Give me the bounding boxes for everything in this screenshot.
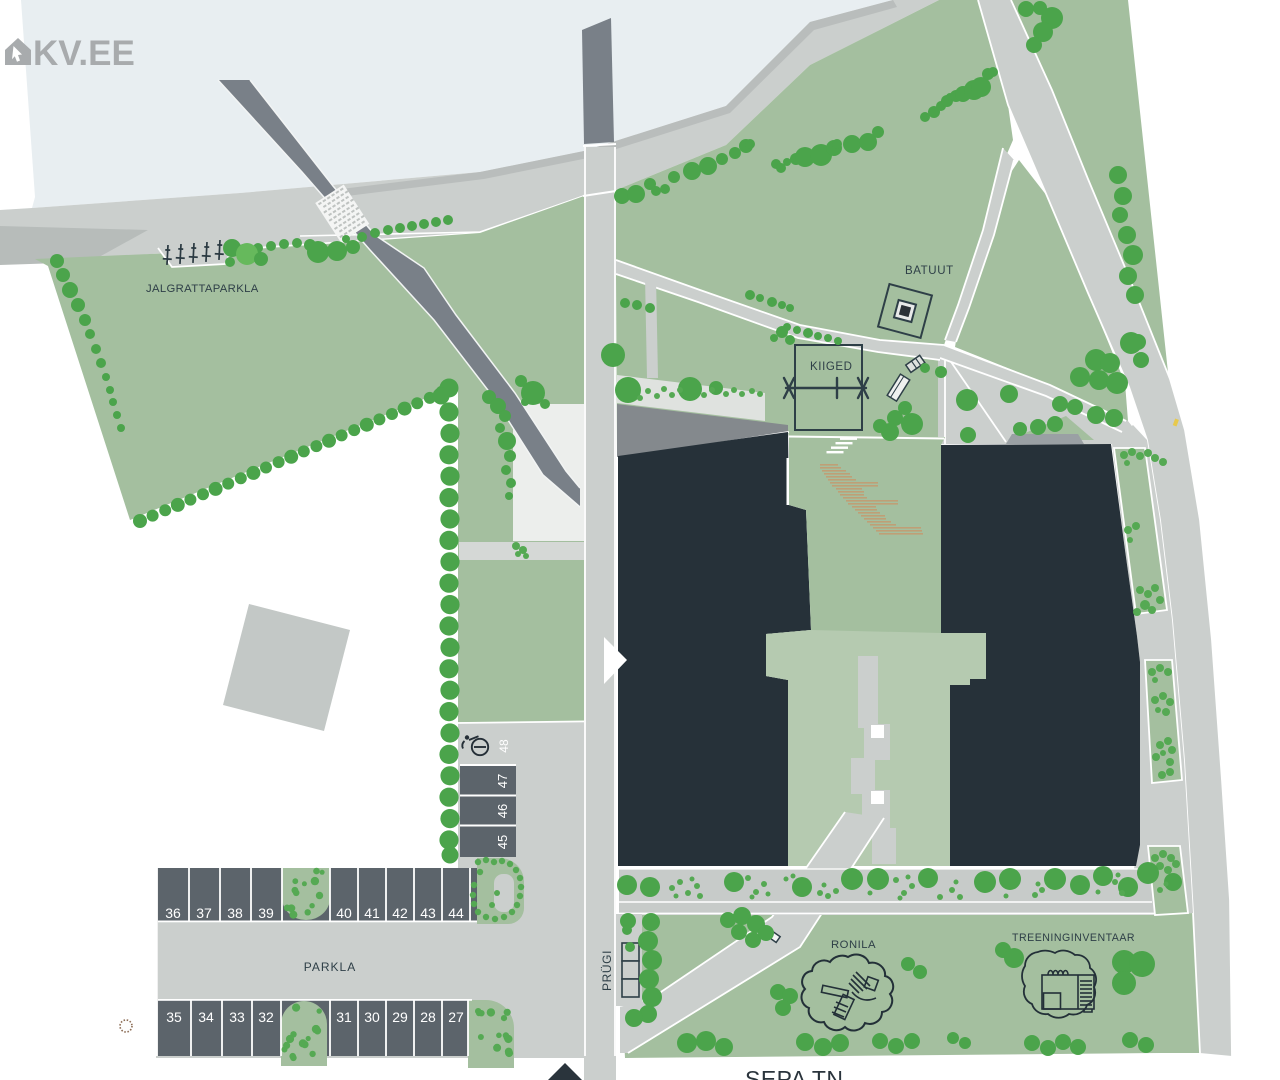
svg-text:48: 48	[497, 739, 511, 753]
svg-text:38: 38	[227, 905, 243, 921]
svg-text:28: 28	[420, 1009, 436, 1025]
svg-text:TREENINGINVENTAAR: TREENINGINVENTAAR	[1012, 932, 1135, 944]
svg-text:PARKLA: PARKLA	[304, 960, 356, 974]
svg-text:46: 46	[495, 804, 510, 818]
svg-text:33: 33	[229, 1009, 245, 1025]
svg-text:40: 40	[336, 905, 352, 921]
svg-text:34: 34	[198, 1009, 214, 1025]
svg-text:45: 45	[495, 835, 510, 849]
svg-text:35: 35	[166, 1009, 182, 1025]
svg-text:29: 29	[392, 1009, 408, 1025]
svg-text:PRÜGI: PRÜGI	[600, 950, 614, 991]
svg-text:41: 41	[364, 905, 380, 921]
svg-text:BATUUT: BATUUT	[905, 265, 954, 277]
svg-text:43: 43	[420, 905, 436, 921]
svg-text:42: 42	[392, 905, 408, 921]
svg-text:39: 39	[258, 905, 274, 921]
svg-text:47: 47	[495, 774, 510, 788]
svg-text:RONILA: RONILA	[831, 939, 876, 951]
svg-text:32: 32	[258, 1009, 274, 1025]
svg-text:30: 30	[364, 1009, 380, 1025]
svg-text:37: 37	[196, 905, 212, 921]
svg-text:27: 27	[448, 1009, 464, 1025]
svg-text:KIIGED: KIIGED	[810, 361, 853, 373]
svg-text:36: 36	[165, 905, 181, 921]
svg-text:JALGRATTAPARKLA: JALGRATTAPARKLA	[146, 283, 259, 295]
svg-text:KV.EE: KV.EE	[33, 34, 135, 73]
svg-text:SEPA TN: SEPA TN	[745, 1066, 844, 1080]
svg-text:44: 44	[448, 905, 464, 921]
svg-text:31: 31	[336, 1009, 352, 1025]
